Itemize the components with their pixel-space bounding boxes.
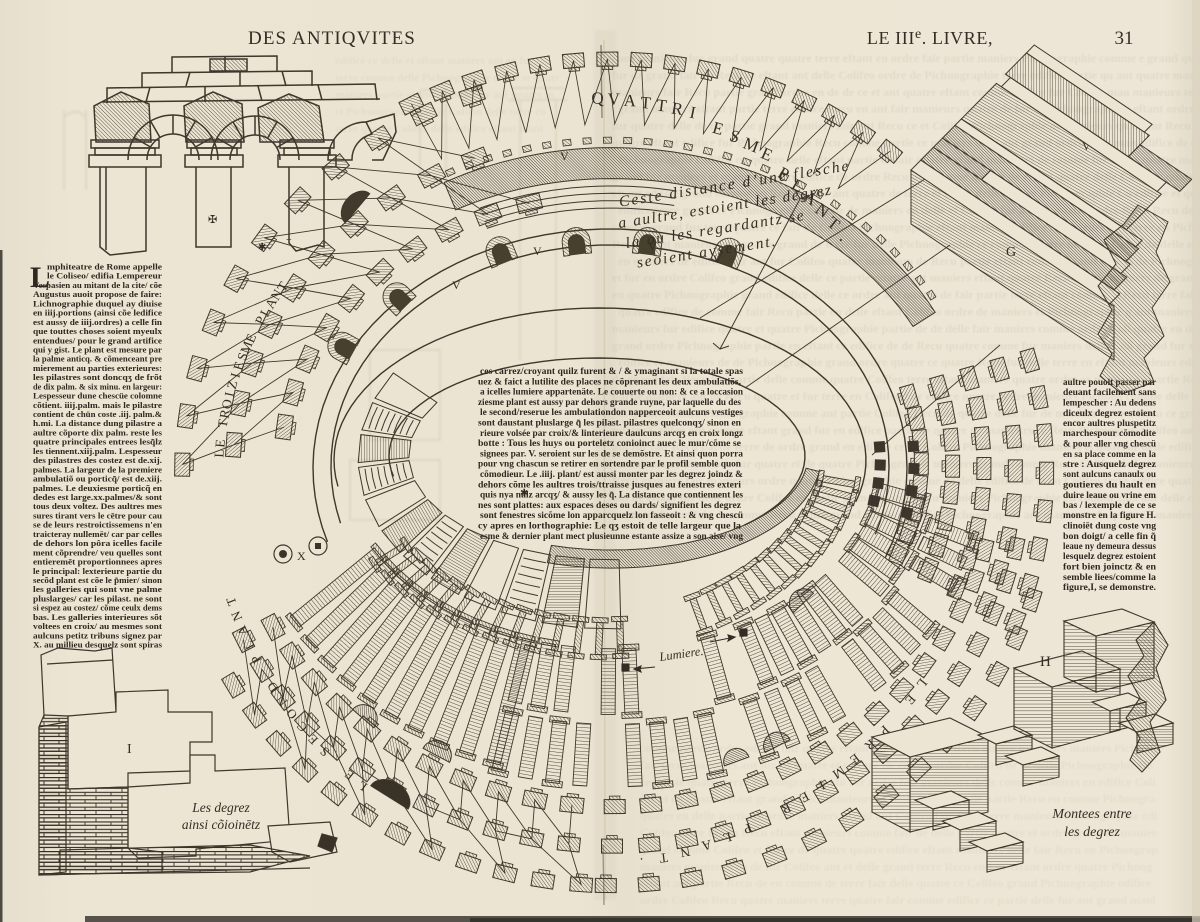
- svg-text:maniers manieurs de de fur Col: maniers manieurs de de fur Colifeo ant e…: [640, 859, 1152, 873]
- svg-text:en sa place comme en la: en sa place comme en la: [1063, 450, 1156, 460]
- svg-text:sont fenestres sicõme lon appa: sont fenestres sicõme lon apparcquelz lo…: [480, 511, 743, 521]
- svg-text:E: E: [212, 439, 228, 448]
- svg-text:quis nya nulz arcqʒ/ & aussy l: quis nya nulz arcqʒ/ & aussy les q̃. La …: [480, 490, 743, 501]
- svg-text:sont aulcuns canaulx ou: sont aulcuns canaulx ou: [1063, 470, 1156, 480]
- svg-text:pour vng chascun se retirer en: pour vng chascun se retirer en sortendre…: [478, 460, 742, 470]
- svg-text:grand comme Colifeo et fur ce: grand comme Colifeo et fur ce de quatre …: [640, 842, 1159, 856]
- svg-text:V: V: [560, 149, 569, 163]
- svg-text:diceulx degrez estoient: diceulx degrez estoient: [1063, 409, 1157, 419]
- svg-text:leaue ny demeura dessus: leaue ny demeura dessus: [1063, 542, 1156, 552]
- svg-text:les degrez: les degrez: [1064, 825, 1120, 840]
- svg-text:goutieres du hault en: goutieres du hault en: [1063, 481, 1157, 491]
- svg-text:encor aultres pluspetitz: encor aultres pluspetitz: [1063, 419, 1156, 429]
- svg-text:ainsi cõioinētz: ainsi cõioinētz: [182, 817, 261, 832]
- svg-text:A: A: [623, 91, 637, 111]
- svg-text:esme & dernier plant mect plus: esme & dernier plant mect plusieunne est…: [480, 532, 743, 542]
- svg-text:& pour aller vng chescü: & pour aller vng chescü: [1063, 440, 1156, 450]
- svg-text:X: X: [297, 549, 306, 563]
- svg-text:uez & faict a lutilite des pla: uez & faict a lutilite des places ne cõp…: [478, 377, 741, 387]
- svg-text:31: 31: [1115, 28, 1134, 49]
- svg-text:lesquelz degrez estoient: lesquelz degrez estoient: [1063, 552, 1157, 562]
- svg-text:marchespour cõmodite: marchespour cõmodite: [1063, 429, 1156, 439]
- svg-text:sont daustant pluslarge q̃ les: sont daustant pluslarge q̃ les pilast. p…: [478, 418, 742, 429]
- svg-text:duire leaue ou vrine em: duire leaue ou vrine em: [1063, 491, 1156, 501]
- svg-text:H: H: [1040, 654, 1051, 670]
- svg-text:V: V: [608, 90, 621, 109]
- svg-text:L: L: [30, 261, 50, 294]
- svg-text:dehors cõme les aultres trois/: dehors cõme les aultres trois/ttraisse j…: [478, 480, 741, 490]
- svg-text:signees par. V. seroient sur l: signees par. V. seroient sur les de se d…: [480, 449, 743, 459]
- svg-text:G: G: [1006, 245, 1016, 260]
- svg-text:I: I: [127, 742, 132, 757]
- svg-text:cy apres en lorthographie: Le: cy apres en lorthographie: Le qʒ estoit …: [478, 522, 741, 532]
- svg-text:Les degrez: Les degrez: [191, 800, 250, 815]
- svg-text:Montees entre: Montees entre: [1051, 807, 1131, 822]
- svg-text:L: L: [211, 449, 226, 458]
- svg-text:fort bien joinctz & en: fort bien joinctz & en: [1063, 563, 1157, 573]
- svg-text:bas / lexemple de ce se: bas / lexemple de ce se: [1063, 501, 1156, 511]
- svg-text:le second/reserue les ambulati: le second/reserue les ambulationdon napp…: [480, 408, 743, 418]
- svg-text:rieure volsée par croix/& lint: rieure volsée par croix/& linterieure da…: [480, 429, 743, 439]
- svg-text:DES ANTIQVITES: DES ANTIQVITES: [248, 28, 416, 49]
- svg-text:semble liees/comme la: semble liees/comme la: [1063, 573, 1156, 583]
- svg-text:✱: ✱: [258, 242, 266, 253]
- svg-text:terre quatre Colifeo delle edi: terre quatre Colifeo delle edifice eftan…: [335, 123, 543, 135]
- svg-text:V: V: [452, 278, 461, 292]
- svg-text:lempescher : Au dedens: lempescher : Au dedens: [1063, 399, 1156, 409]
- svg-text:deuant facilement sans: deuant facilement sans: [1063, 388, 1156, 398]
- svg-text:et Pichnographie partie Colife: et Pichnographie partie Colifeo delle te…: [335, 106, 546, 118]
- svg-text:monstre en la figure H.: monstre en la figure H.: [1063, 511, 1156, 521]
- svg-text:figure,I, se demonstre.: figure,I, se demonstre.: [1063, 583, 1156, 593]
- svg-text:cõmodieur. Le .iiij. plant/ es: cõmodieur. Le .iiij. plant/ est aussi mo…: [480, 470, 743, 480]
- svg-text:botte : Tous les huys ou port: botte : Tous les huys ou porteletz conio…: [478, 439, 741, 449]
- svg-text:LE IIIe. LIVRE,: LE IIIe. LIVRE,: [867, 27, 993, 48]
- svg-text:stre : Ausquelz degrez: stre : Ausquelz degrez: [1063, 460, 1156, 470]
- svg-text:nes sont plattes: aux espaces: nes sont plattes: aux espaces deses ou d…: [478, 501, 741, 511]
- svg-text:ces carrez/croyant quilz furen: ces carrez/croyant quilz furent & / & ym…: [480, 367, 743, 377]
- svg-text:clinoiēt dung coste vng: clinoiēt dung coste vng: [1063, 522, 1156, 532]
- svg-text:X. au millieu desquelz sont sp: X. au millieu desquelz sont spiras: [33, 640, 163, 650]
- svg-text:V: V: [533, 244, 542, 258]
- svg-text:✠: ✠: [208, 214, 217, 226]
- svg-text:bon doigt/ a celle fin q̃: bon doigt/ a celle fin q̃: [1063, 531, 1157, 542]
- svg-text:eftant ant partie Recu de en c: eftant ant partie Recu de en comme de te…: [640, 876, 1152, 890]
- svg-text:ziesme plant est aussy par deh: ziesme plant est aussy par dehors grande…: [478, 398, 741, 408]
- svg-text:Q: Q: [591, 88, 604, 107]
- svg-text:a icelles lumiere appartenäte.: a icelles lumiere appartenäte. Le couuer…: [480, 388, 744, 398]
- svg-text:ordre Colifeo Recu quatre mani: ordre Colifeo Recu quatre maniers terre …: [640, 893, 1157, 907]
